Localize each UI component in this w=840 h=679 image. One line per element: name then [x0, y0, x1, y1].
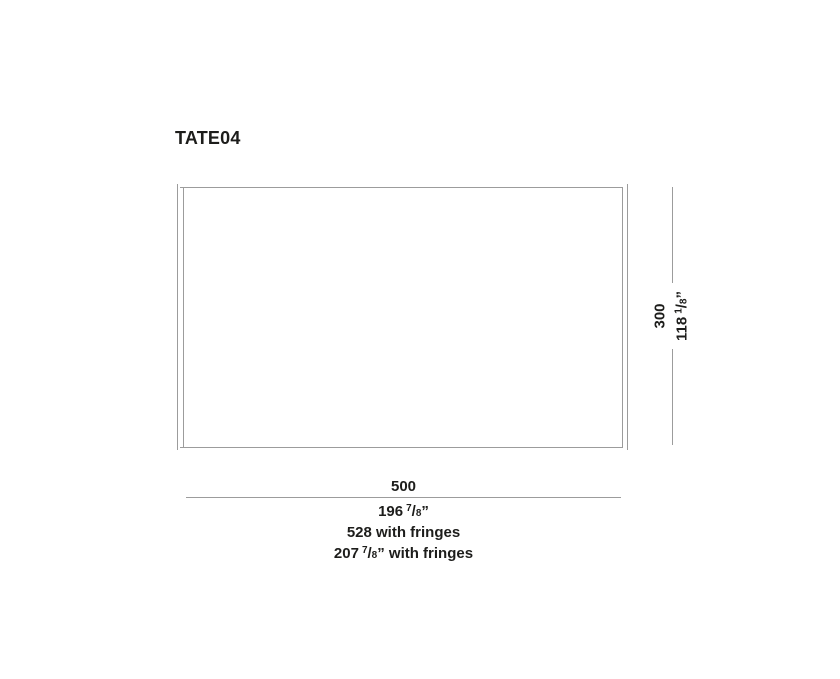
height-imperial-value: 1181/8”	[670, 291, 694, 341]
spec-sheet: TATE04 300 1181/8” 500 1967/8” 528 with …	[0, 0, 840, 679]
product-code-title: TATE04	[175, 129, 241, 147]
width-dimension-line	[186, 497, 621, 498]
fringe-line-right	[627, 184, 628, 450]
fringes-metric-value: 528 with fringes	[186, 525, 621, 541]
rug-top-edge-line	[180, 187, 622, 188]
height-imperial-unit-mark: ”	[674, 291, 691, 299]
width-metric-value: 500	[186, 479, 621, 495]
fringes-imperial-whole: 207	[334, 545, 359, 562]
height-imperial-whole: 118	[674, 317, 691, 341]
fringes-imperial-value: 2077/8” with fringes	[186, 543, 621, 564]
width-imperial-whole: 196	[378, 503, 403, 520]
width-imperial-unit-mark: ”	[421, 503, 429, 520]
height-imperial-fraction-denominator: 8	[679, 299, 690, 305]
width-imperial-value: 1967/8”	[186, 501, 621, 522]
rug-left-edge-line	[183, 187, 184, 448]
rug-bottom-edge-line	[180, 447, 622, 448]
height-metric-value: 300	[651, 291, 670, 341]
height-imperial-fraction-numerator: 1	[674, 308, 685, 314]
fringe-line-left	[177, 184, 178, 450]
rug-right-edge-line	[622, 187, 623, 448]
fringes-imperial-unit-mark: ” with fringes	[377, 545, 473, 562]
height-dimension-label: 300 1181/8”	[648, 283, 697, 349]
height-imperial-fraction-slash: /	[674, 304, 691, 308]
